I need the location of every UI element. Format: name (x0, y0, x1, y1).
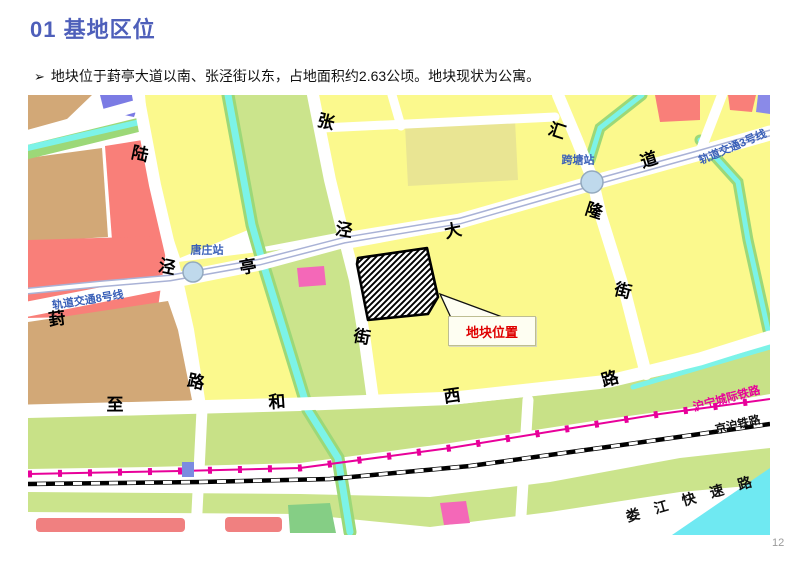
road-label: 葑 (47, 309, 66, 328)
road-label: 路 (186, 372, 206, 392)
bullet-text: ➢地块位于葑亭大道以南、张泾街以东，占地面积约2.63公顷。地块现状为公寓。 (34, 66, 540, 86)
road-label: 陆 (130, 144, 150, 164)
site-location-callout-text: 地块位置 (466, 322, 518, 341)
station-label-tangzhuang: 唐庄站 (191, 246, 224, 257)
bullet-arrow-icon: ➢ (34, 69, 45, 84)
road-label: 至 (107, 397, 124, 414)
road-label: 西 (442, 386, 461, 405)
site-location-callout: 地块位置 (448, 316, 536, 346)
site-location-map: 陆 泾 路 张 泾 街 汇 隆 街 葑 亭 大 道 至 和 西 路 唐庄站 跨塘… (28, 95, 770, 535)
site-parcel-hatch (357, 248, 438, 320)
slide: 01 基地区位 ➢地块位于葑亭大道以南、张泾街以东，占地面积约2.63公顷。地块… (0, 0, 800, 566)
kuatang-station-marker (581, 171, 603, 193)
road-label: 和 (268, 393, 286, 411)
page-title: 01 基地区位 (30, 12, 156, 44)
road-label: 街 (352, 327, 372, 347)
station-label-kuatang: 跨塘站 (562, 156, 595, 167)
tangzhuang-station-marker (183, 262, 203, 282)
road-label: 亭 (238, 257, 258, 277)
railway-station-marker (182, 462, 194, 477)
page-number: 12 (772, 537, 784, 549)
bullet-body: 地块位于葑亭大道以南、张泾街以东，占地面积约2.63公顷。地块现状为公寓。 (51, 68, 540, 84)
road-label: 大 (443, 221, 463, 241)
road-label: 泾 (157, 257, 177, 277)
road-label: 泾 (334, 220, 354, 240)
